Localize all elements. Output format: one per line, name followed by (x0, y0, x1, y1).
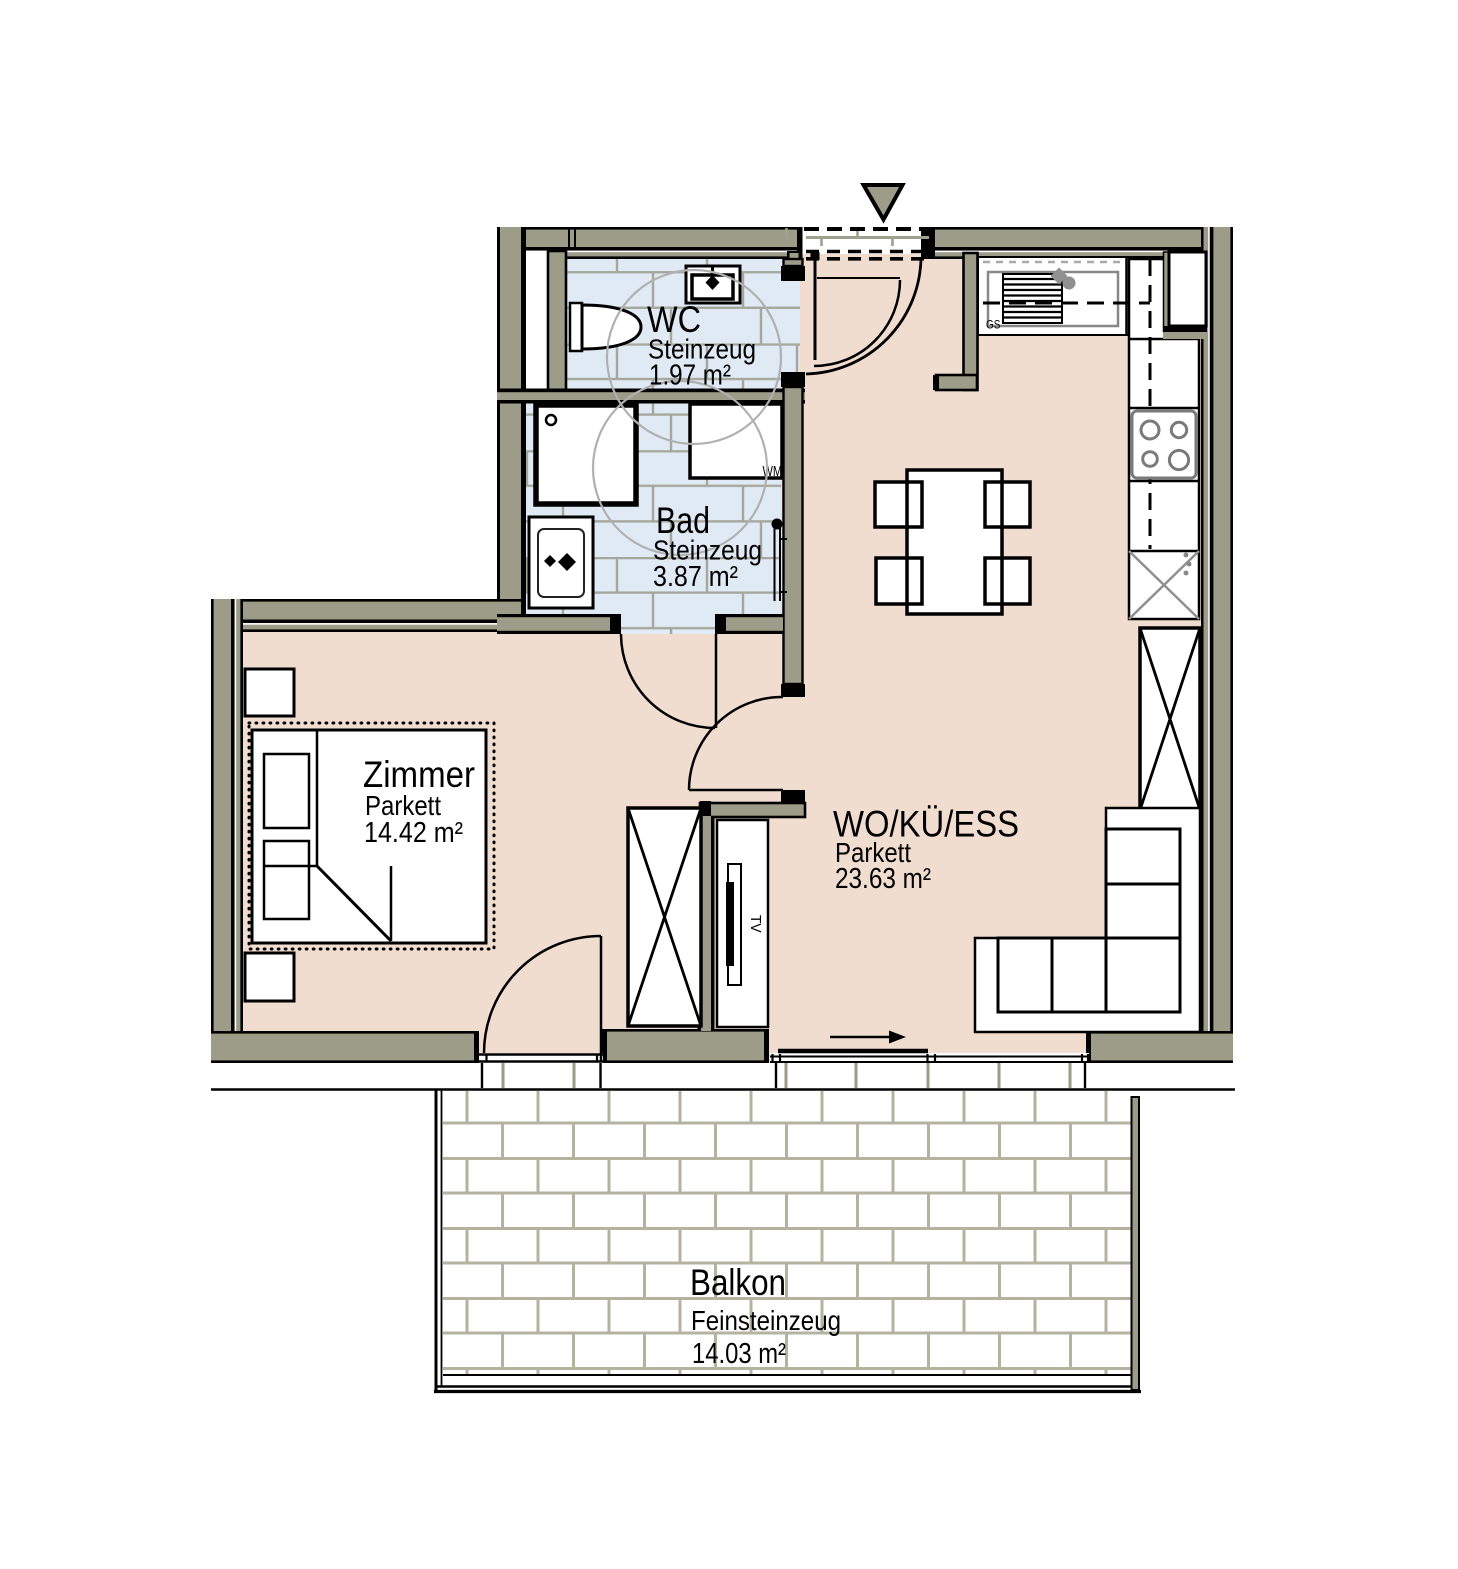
svg-text:23.63 m²: 23.63 m² (835, 863, 931, 895)
svg-text:Feinsteinzeug: Feinsteinzeug (691, 1305, 841, 1336)
svg-text:Zimmer: Zimmer (363, 753, 475, 795)
svg-text:3.87 m²: 3.87 m² (653, 561, 738, 593)
svg-text:1.97 m²: 1.97 m² (649, 360, 731, 392)
svg-text:14.03 m²: 14.03 m² (692, 1338, 786, 1370)
svg-text:Balkon: Balkon (690, 1261, 786, 1303)
svg-text:TV: TV (747, 915, 764, 933)
svg-text:14.42 m²: 14.42 m² (364, 817, 463, 849)
svg-text:GS: GS (986, 318, 1001, 332)
